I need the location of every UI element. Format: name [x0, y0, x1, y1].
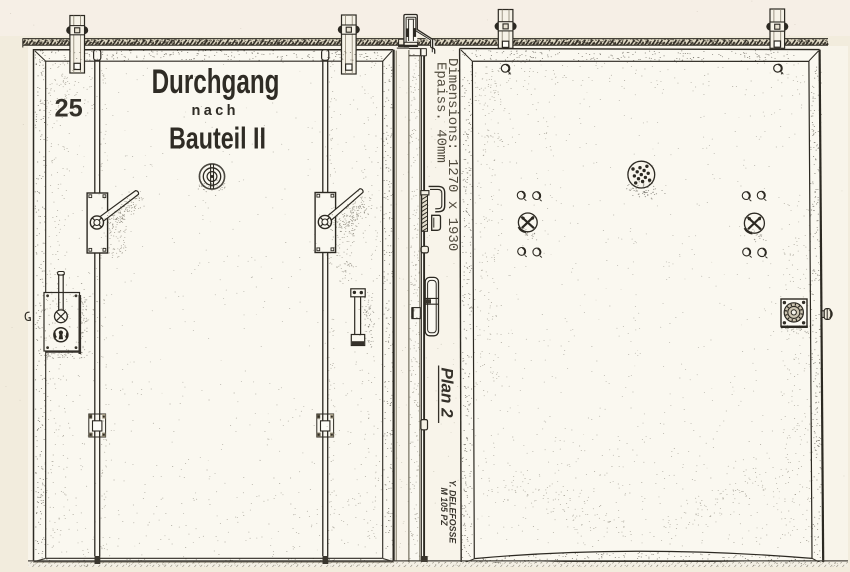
svg-text:Plan 2: Plan 2 — [438, 368, 457, 419]
svg-text:25: 25 — [55, 95, 83, 123]
svg-text:Epaiss. 40mm: Epaiss. 40mm — [433, 62, 449, 163]
svg-text:Bauteil II: Bauteil II — [169, 122, 266, 156]
svg-text:Durchgang: Durchgang — [152, 63, 280, 101]
svg-text:M 105 PZ: M 105 PZ — [439, 488, 449, 527]
svg-text:nach: nach — [192, 103, 239, 119]
